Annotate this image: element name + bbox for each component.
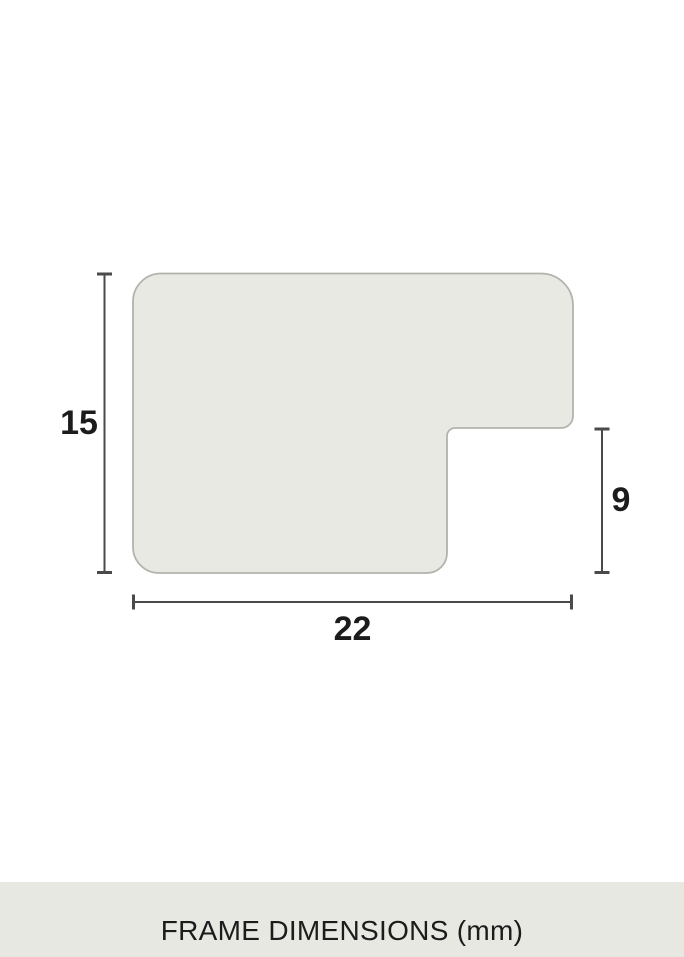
rabbet-dimension-label: 9 (612, 481, 631, 519)
width-dimension: 22 (134, 595, 572, 649)
width-dimension-label: 22 (334, 610, 372, 648)
height-dimension-label: 15 (60, 404, 98, 442)
footer-caption: FRAME DIMENSIONS (mm) (161, 915, 524, 947)
frame-profile-diagram: 15 9 22 (0, 0, 684, 882)
rabbet-dimension: 9 (595, 429, 631, 573)
footer-bar: FRAME DIMENSIONS (mm) (0, 882, 684, 957)
frame-profile-shape (133, 274, 573, 574)
height-dimension: 15 (60, 274, 112, 573)
frame-dimension-diagram-page: 15 9 22 FRAME DIMENSIONS (mm) (0, 0, 684, 957)
